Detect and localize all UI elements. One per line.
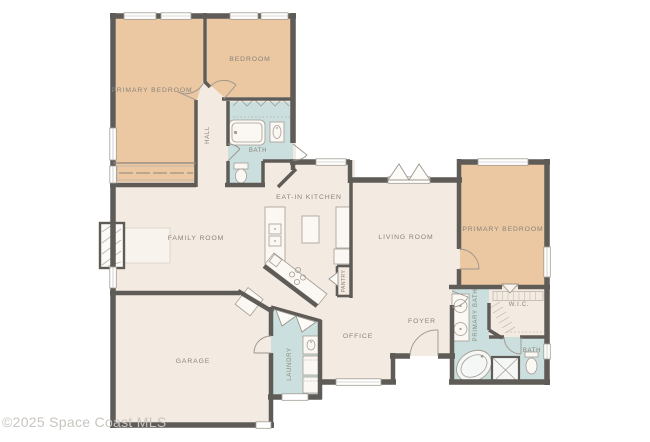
hall-bathtub: [229, 120, 265, 145]
window: [110, 267, 117, 288]
washer: [303, 356, 319, 375]
window: [161, 13, 191, 19]
shower: [492, 357, 519, 383]
window: [124, 13, 156, 19]
label-family-room: FAMILY ROOM: [168, 235, 224, 242]
label-bath-2: BATH: [523, 348, 541, 354]
watermark: ©2025 Space Coast MLS: [2, 414, 166, 430]
label-pantry: PANTRY: [341, 269, 347, 292]
hall-toilet: [234, 163, 248, 183]
label-foyer: FOYER: [408, 318, 436, 325]
floor-plan-page: PRIMARY BEDROOM BEDROOM BATH HALL FAMILY…: [0, 0, 650, 442]
window: [110, 166, 117, 183]
label-living-room: LIVING ROOM: [378, 234, 433, 241]
dryer: [303, 377, 319, 393]
label-wic: W.I.C.: [509, 302, 530, 308]
window: [544, 344, 551, 359]
label-primary-bedroom-right: PRIMARY BEDROOM: [462, 226, 543, 233]
window: [110, 128, 117, 160]
laundry-appliances: [303, 336, 319, 393]
label-primary-bedroom-left: PRIMARY BEDROOM: [111, 87, 192, 94]
label-garage: GARAGE: [176, 358, 210, 365]
label-bath: BATH: [249, 148, 267, 154]
room-primary-bedroom-left: [116, 16, 203, 182]
label-primary-bath: PRIMARY BATH: [473, 289, 479, 342]
window: [336, 379, 381, 386]
room-primary-bedroom-right: [460, 163, 547, 287]
window: [261, 13, 288, 19]
label-office: OFFICE: [343, 333, 373, 340]
hall-bath-sink: [270, 122, 284, 142]
kitchen-island: [302, 216, 319, 243]
window: [230, 13, 258, 19]
window: [544, 247, 551, 277]
label-bedroom: BEDROOM: [229, 56, 270, 63]
window: [316, 159, 346, 166]
laundry-exterior-door: [282, 394, 308, 401]
window: [256, 422, 271, 429]
floor-plan-svg: PRIMARY BEDROOM BEDROOM BATH HALL FAMILY…: [0, 0, 650, 442]
refrigerator: [334, 249, 351, 264]
label-laundry: LAUNDRY: [287, 347, 293, 380]
primary-bath-vanity: [452, 294, 469, 341]
label-eat-in-kitchen: EAT-IN KITCHEN: [276, 194, 342, 201]
label-hall: HALL: [205, 126, 211, 144]
french-door: [388, 164, 430, 183]
bath2-toilet: [525, 352, 538, 374]
window: [478, 159, 528, 166]
